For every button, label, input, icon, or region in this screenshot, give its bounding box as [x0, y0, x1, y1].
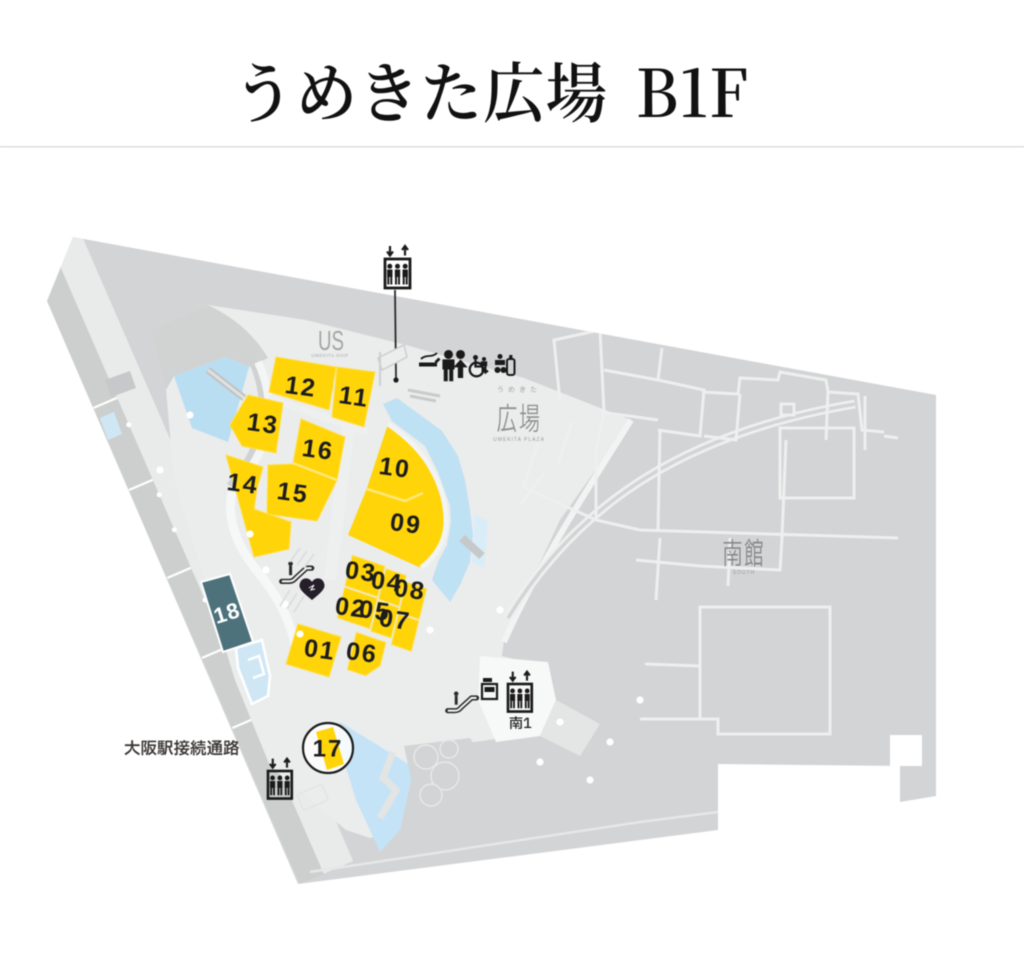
svg-text:08: 08	[392, 574, 427, 606]
svg-text:16: 16	[300, 434, 335, 466]
svg-text:15: 15	[275, 477, 310, 509]
svg-text:17: 17	[313, 736, 344, 763]
svg-text:UMEKITA SHIP: UMEKITA SHIP	[311, 353, 348, 358]
svg-text:07: 07	[377, 604, 412, 636]
svg-text:09: 09	[388, 508, 423, 540]
svg-text:US: US	[318, 326, 344, 356]
svg-text:01: 01	[302, 634, 337, 666]
svg-text:14: 14	[225, 468, 260, 500]
svg-text:12: 12	[283, 371, 318, 403]
svg-text:10: 10	[377, 452, 412, 484]
svg-text:06: 06	[344, 637, 379, 669]
svg-text:11: 11	[337, 381, 371, 413]
svg-text:SOUTH: SOUTH	[733, 570, 756, 576]
svg-text:13: 13	[245, 408, 280, 440]
svg-text:UMEKITA PLAZA: UMEKITA PLAZA	[493, 437, 545, 443]
